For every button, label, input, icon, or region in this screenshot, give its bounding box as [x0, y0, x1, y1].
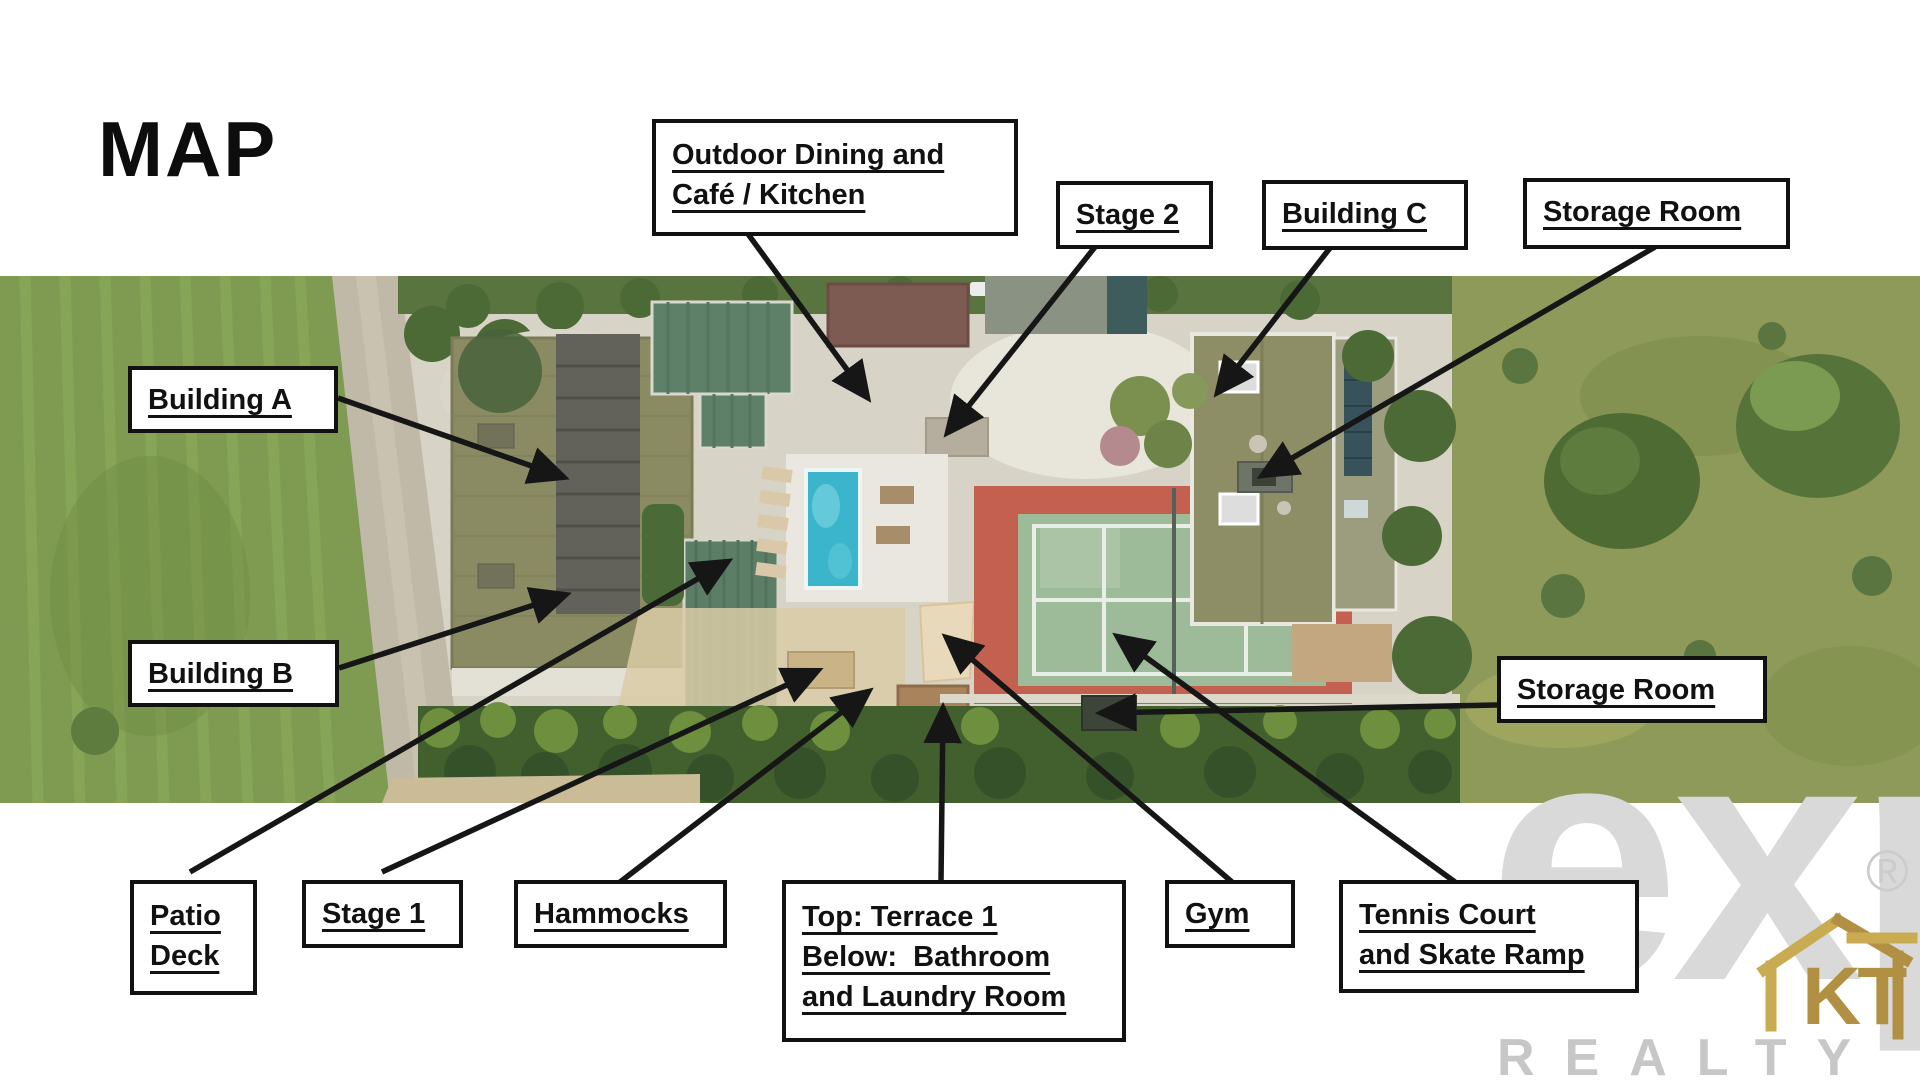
aerial-photo: [0, 276, 1920, 803]
sandy-strip: [382, 774, 700, 803]
skylight: [1344, 500, 1368, 518]
label-gym: Gym: [1165, 880, 1295, 948]
label-text: Patio: [150, 896, 241, 936]
kt-monogram: KT: [1802, 951, 1907, 1042]
storage-shed-bottom: [1082, 696, 1136, 730]
label-building-c: Building C: [1262, 180, 1468, 250]
window: [1220, 362, 1258, 392]
label-text: and Skate Ramp: [1359, 935, 1623, 975]
sand-area: [618, 608, 905, 706]
building-c-deck: [1292, 624, 1392, 682]
stage2-platform: [926, 418, 988, 456]
shade-sail: [920, 602, 974, 682]
label-storage-room-right: Storage Room: [1497, 656, 1767, 723]
kt-house-icon: KT: [1752, 908, 1920, 1048]
label-stage1: Stage 1: [302, 880, 463, 948]
label-text: Building C: [1282, 194, 1452, 234]
label-text: Tennis Court: [1359, 895, 1623, 935]
retaining-wall: [940, 694, 1460, 703]
label-hammocks: Hammocks: [514, 880, 727, 948]
label-text: Gym: [1185, 894, 1279, 934]
label-tennis-skate: Tennis Court and Skate Ramp: [1339, 880, 1639, 993]
label-text: Deck: [150, 936, 241, 976]
roof-vent: [478, 424, 514, 448]
label-text: Storage Room: [1517, 670, 1751, 710]
garage-roof: [985, 276, 1147, 334]
window: [1220, 494, 1258, 524]
label-text: Storage Room: [1543, 192, 1774, 232]
label-text: Outdoor Dining and: [672, 135, 1002, 175]
maroon-roof: [828, 284, 968, 346]
stage1-platform: [788, 652, 854, 688]
solar-array: [556, 334, 640, 614]
field-bush: [71, 707, 119, 755]
label-building-b: Building B: [128, 640, 339, 707]
label-text: and Laundry Room: [802, 977, 1110, 1017]
label-text: Building B: [148, 654, 323, 694]
label-patio-deck: Patio Deck: [130, 880, 257, 995]
label-building-a: Building A: [128, 366, 338, 433]
page-title: MAP: [98, 104, 277, 195]
label-text: Below: Bathroom: [802, 937, 1110, 977]
label-outdoor-dining: Outdoor Dining and Café / Kitchen: [652, 119, 1018, 236]
label-stage2: Stage 2: [1056, 181, 1213, 249]
label-text: Building A: [148, 380, 322, 420]
roof-vent: [478, 564, 514, 588]
tree-over-roof: [458, 329, 542, 413]
label-text: Hammocks: [534, 894, 711, 934]
label-storage-room-top: Storage Room: [1523, 178, 1790, 249]
label-text: Top: Terrace 1: [802, 897, 1110, 937]
label-text: Café / Kitchen: [672, 175, 1002, 215]
registered-trademark-icon: ®: [1866, 838, 1909, 905]
mid-hedge: [642, 504, 684, 606]
slide: exp ® REALTY KT: [0, 0, 1920, 1080]
realty-wordmark: REALTY: [1497, 1028, 1881, 1080]
storage-structure-door: [1252, 468, 1276, 486]
label-text: Stage 2: [1076, 195, 1197, 235]
label-text: Stage 1: [322, 894, 447, 934]
label-terrace-bathroom-laundry: Top: Terrace 1 Below: Bathroom and Laund…: [782, 880, 1126, 1042]
